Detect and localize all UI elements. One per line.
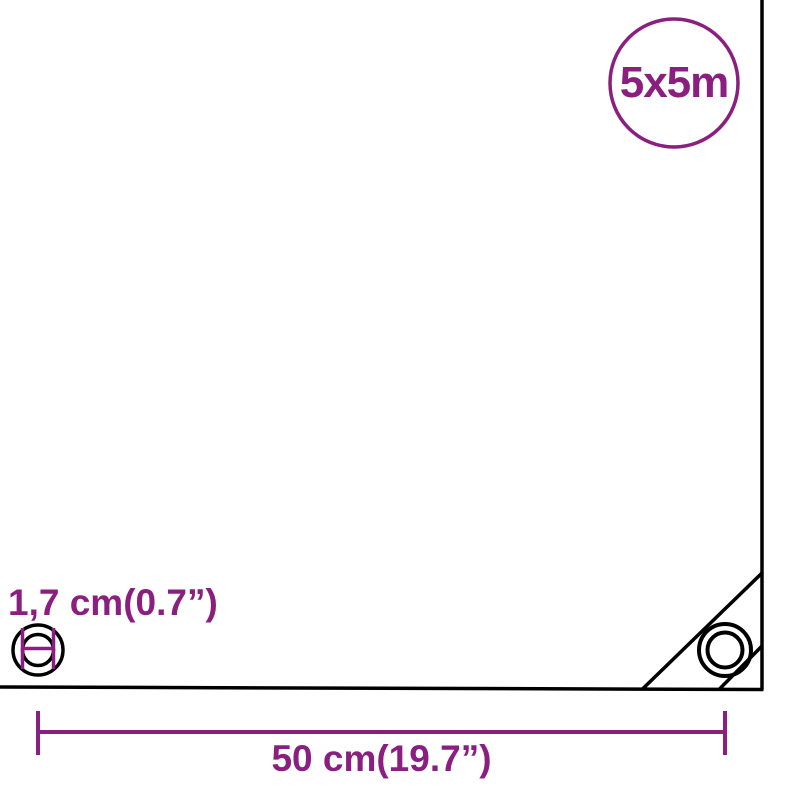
tarp-bottom-edge	[0, 687, 764, 690]
grommet-diameter-icon	[13, 625, 63, 675]
grommet-size-label: 1,7 cm(0.7”)	[8, 584, 218, 621]
width-measure-label: 50 cm(19.7”)	[38, 740, 725, 777]
corner-grommet-inner-ring	[708, 633, 743, 668]
corner-grommet-icon	[699, 624, 751, 676]
product-dimension-diagram: 5x5m 1,7 cm(0.7”) 50 cm(19.7”)	[0, 0, 800, 800]
size-badge-label: 5x5m	[610, 18, 738, 148]
